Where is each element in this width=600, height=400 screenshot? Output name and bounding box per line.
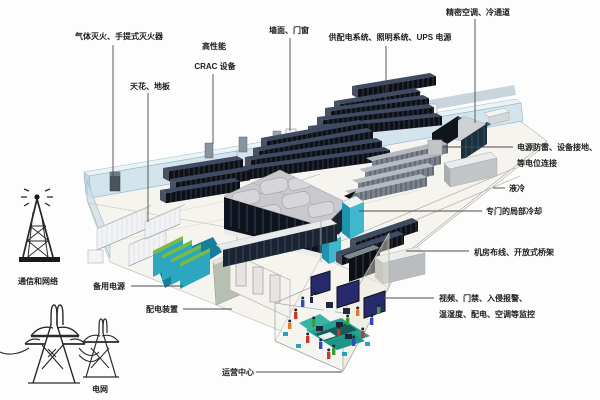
svg-text:CRAC 设备: CRAC 设备 — [194, 61, 236, 71]
svg-text:天花、地板: 天花、地板 — [130, 81, 171, 91]
svg-text:供配电系统、照明系统、UPS 电源: 供配电系统、照明系统、UPS 电源 — [328, 32, 452, 42]
svg-text:机房布线、开放式桥架: 机房布线、开放式桥架 — [474, 247, 554, 257]
svg-text:运营中心: 运营中心 — [222, 367, 254, 377]
svg-text:通信和网络: 通信和网络 — [18, 276, 58, 286]
svg-text:视频、门禁、入侵报警、: 视频、门禁、入侵报警、 — [439, 293, 527, 303]
svg-text:等电位连接: 等电位连接 — [516, 158, 557, 168]
svg-text:墙面、门窗: 墙面、门窗 — [269, 25, 309, 35]
svg-text:高性能: 高性能 — [202, 41, 226, 51]
svg-text:备用电源: 备用电源 — [92, 281, 125, 291]
svg-text:电源防雷、设备接地、: 电源防雷、设备接地、 — [517, 142, 597, 152]
svg-text:温湿度、配电、空调等监控: 温湿度、配电、空调等监控 — [439, 309, 535, 319]
svg-text:精密空调、冷通道: 精密空调、冷通道 — [446, 7, 510, 17]
svg-text:电网: 电网 — [92, 384, 108, 394]
svg-text:液冷: 液冷 — [509, 183, 525, 193]
svg-text:配电装置: 配电装置 — [146, 304, 178, 314]
svg-text:气体灭火、手提式灭火器: 气体灭火、手提式灭火器 — [74, 31, 164, 41]
svg-text:专门的局部冷却: 专门的局部冷却 — [486, 206, 542, 216]
